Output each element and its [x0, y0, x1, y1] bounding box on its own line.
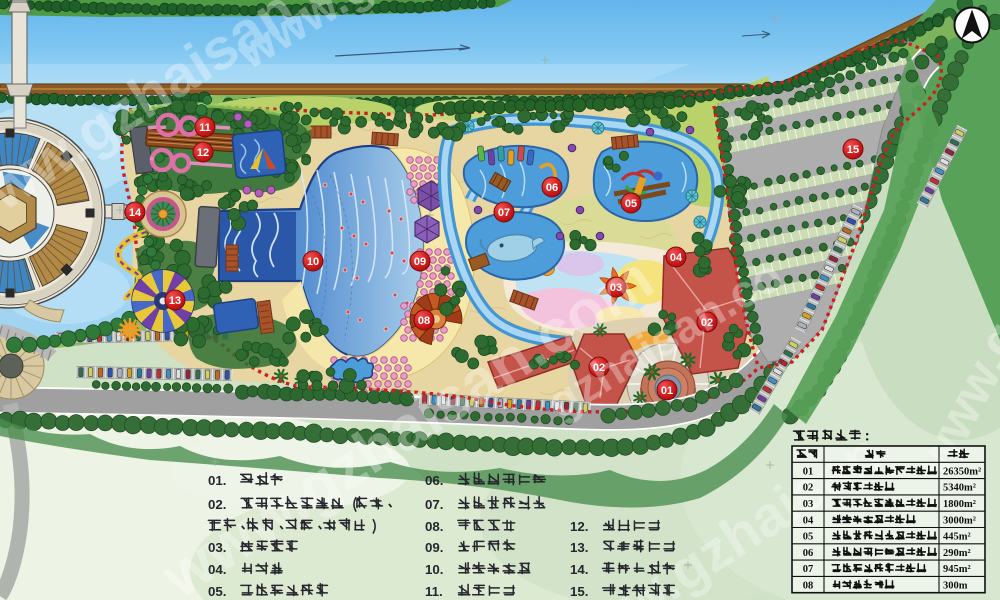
svg-text:03: 03	[803, 499, 814, 510]
svg-text:15: 15	[847, 144, 859, 156]
svg-text:04: 04	[670, 252, 683, 264]
svg-text:14: 14	[129, 207, 142, 219]
svg-text:08: 08	[803, 581, 814, 592]
svg-text:06: 06	[803, 548, 814, 559]
svg-text:09.: 09.	[425, 540, 444, 555]
svg-text:300m: 300m	[943, 581, 968, 592]
svg-text:04.: 04.	[208, 562, 227, 577]
svg-text:02: 02	[803, 483, 814, 494]
svg-text:08.: 08.	[425, 519, 444, 534]
svg-text:07.: 07.	[425, 497, 444, 512]
svg-text:13.: 13.	[570, 540, 589, 555]
svg-text:03.: 03.	[208, 540, 227, 555]
svg-text:01.: 01.	[208, 473, 227, 488]
svg-text:12.: 12.	[570, 519, 589, 534]
svg-text:13: 13	[169, 295, 181, 307]
svg-text:06: 06	[546, 182, 558, 194]
svg-text:1800m²: 1800m²	[943, 499, 976, 510]
svg-text:06.: 06.	[425, 473, 444, 488]
svg-text:12: 12	[197, 147, 209, 159]
svg-text:05: 05	[803, 532, 814, 543]
svg-text:09: 09	[414, 256, 426, 268]
svg-text:290m²: 290m²	[943, 548, 971, 559]
svg-text:5340m²: 5340m²	[943, 483, 976, 494]
svg-text:11: 11	[199, 122, 211, 134]
svg-text:05.: 05.	[208, 584, 227, 599]
svg-text:05: 05	[625, 198, 637, 210]
svg-text:10.: 10.	[425, 562, 444, 577]
svg-text:445m²: 445m²	[943, 532, 971, 543]
svg-text:07: 07	[803, 564, 814, 575]
svg-text:26350m²: 26350m²	[943, 466, 981, 477]
svg-text:10: 10	[307, 256, 319, 268]
svg-text:01: 01	[661, 385, 673, 397]
svg-text:01: 01	[803, 466, 814, 477]
svg-text:3000m²: 3000m²	[943, 515, 976, 526]
svg-text:945m²: 945m²	[943, 564, 971, 575]
svg-text:14.: 14.	[570, 562, 589, 577]
svg-text:02.: 02.	[208, 497, 227, 512]
svg-text:07: 07	[498, 207, 510, 219]
svg-text:04: 04	[803, 515, 814, 526]
svg-text:08: 08	[418, 315, 430, 327]
svg-text:11.: 11.	[425, 584, 443, 599]
svg-text:15.: 15.	[570, 584, 589, 599]
